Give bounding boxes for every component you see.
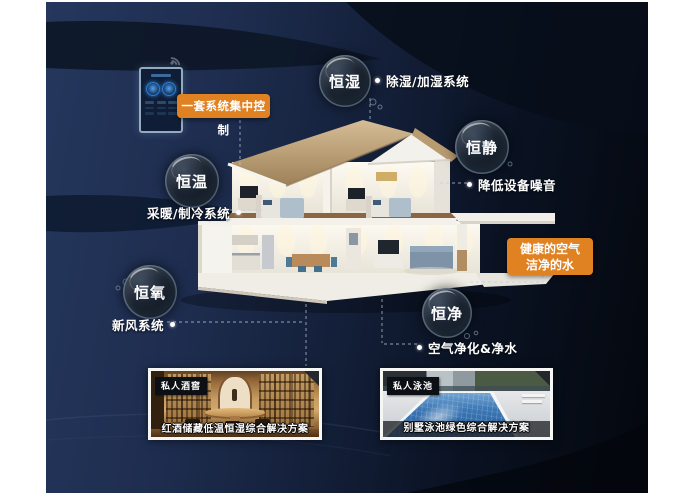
- feature-text: 新风系统: [112, 315, 164, 334]
- bubble-label: 恒温: [176, 171, 208, 192]
- label-fresh-air-system: 新风系统: [112, 315, 175, 334]
- photo-tag: 私人酒窖: [155, 377, 207, 395]
- feature-text: 降低设备噪音: [478, 175, 556, 194]
- connector-dot: [236, 210, 241, 215]
- bubble-clean: 恒净: [422, 288, 472, 338]
- panel-readouts: [145, 101, 177, 115]
- photo-corner-fold: [304, 371, 319, 386]
- dial-knob-icon: [162, 82, 176, 96]
- vase-icon: [232, 389, 237, 401]
- bubble-label: 恒净: [431, 303, 463, 324]
- connector-dot: [170, 322, 175, 327]
- panel-header: [151, 74, 171, 77]
- label-air-water-purification: 空气净化&净水: [417, 338, 517, 357]
- central-control-badge: 一套系统集中控制: [177, 94, 270, 118]
- badge-line-1: 健康的空气: [507, 241, 593, 257]
- lounge-chair: [522, 400, 542, 403]
- label-dehumidify-system: 除湿/加湿系统: [375, 71, 469, 90]
- feature-text: 空气净化&净水: [428, 338, 517, 357]
- feature-text: 采暖/制冷系统: [147, 203, 230, 222]
- bubble-label: 恒氧: [134, 282, 166, 303]
- bubble-oxygen: 恒氧: [123, 265, 177, 319]
- label-heating-cooling-system: 采暖/制冷系统: [147, 203, 241, 222]
- bubble-label: 恒静: [466, 137, 498, 158]
- dial-knob-icon: [146, 82, 160, 96]
- photo-corner-fold: [535, 371, 550, 386]
- bubble-quiet: 恒静: [455, 120, 509, 174]
- connector-dot: [467, 182, 472, 187]
- bubble-temperature: 恒温: [165, 154, 219, 208]
- healthy-air-water-badge: 健康的空气 洁净的水: [507, 238, 593, 275]
- badge-line-2: 洁净的水: [507, 257, 593, 273]
- photo-caption: 红酒储藏低温恒湿综合解决方案: [151, 420, 319, 435]
- photo-tag: 私人泳池: [387, 377, 439, 395]
- photo-caption: 别墅泳池绿色综合解决方案: [383, 421, 550, 437]
- bubble-label: 恒湿: [329, 71, 361, 92]
- wine-cellar-photo: 私人酒窖 红酒储藏低温恒湿综合解决方案: [148, 368, 322, 440]
- feature-text: 除湿/加湿系统: [386, 71, 469, 90]
- label-noise-reduction: 降低设备噪音: [467, 175, 556, 194]
- wifi-icon: [166, 50, 186, 68]
- connector-dot: [417, 345, 422, 350]
- poster-canvas: 一套系统集中控制 健康的空气 洁净的水 恒湿 恒静 恒温 恒氧 恒净 除湿/加湿…: [46, 2, 648, 493]
- bubble-humidity: 恒湿: [319, 55, 371, 107]
- connector-dot: [375, 78, 380, 83]
- lounge-chair: [522, 394, 545, 397]
- pool-photo: 私人泳池 别墅泳池绿色综合解决方案: [380, 368, 553, 440]
